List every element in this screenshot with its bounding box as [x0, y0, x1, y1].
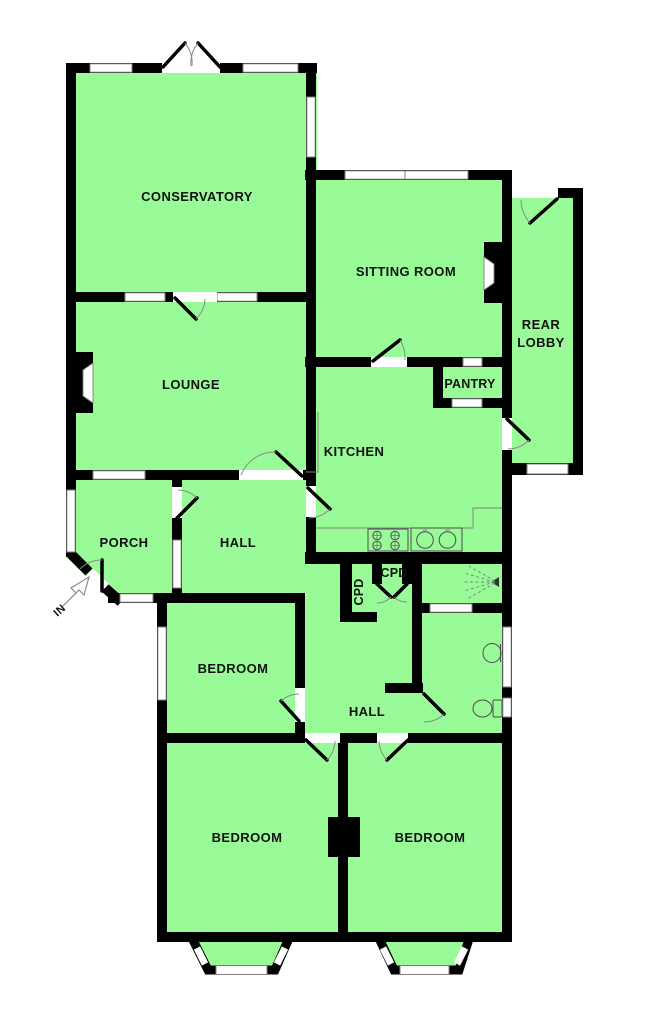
label-cupboard-1: CPD: [352, 579, 366, 606]
window-porch-hall: [173, 540, 181, 588]
label-hall-front: HALL: [220, 535, 256, 550]
window-lounge-top-2: [217, 293, 257, 301]
label-rear-lobby-line2: LOBBY: [517, 335, 565, 350]
opening-pantry-north: [463, 358, 482, 366]
fireplace-lounge-icon: [66, 352, 93, 413]
fireplace-sitting-room-icon: [484, 242, 502, 303]
window-bathroom-2: [503, 698, 511, 717]
label-bedroom-middle: BEDROOM: [198, 661, 269, 676]
floorplan-drawing: CONSERVATORY SITTING ROOM REAR LOBBY LOU…: [0, 0, 645, 1024]
floorplan-page: CONSERVATORY SITTING ROOM REAR LOBBY LOU…: [0, 0, 645, 1024]
window-porch-south: [120, 594, 153, 602]
window-bedroom-middle: [158, 627, 166, 700]
label-hall-rear: HALL: [349, 704, 385, 719]
window-sitting-room: [345, 171, 468, 179]
label-porch: PORCH: [100, 535, 149, 550]
label-cupboard-2: CPD: [381, 566, 408, 580]
label-bedroom-left: BEDROOM: [212, 830, 283, 845]
label-pantry: PANTRY: [444, 377, 496, 391]
window-lounge-top-1: [125, 293, 165, 301]
label-sitting-room: SITTING ROOM: [356, 264, 456, 279]
window-conservatory-east: [307, 97, 315, 157]
floor-conservatory: [66, 63, 317, 302]
chimney-breast-bedrooms-icon: [328, 817, 360, 857]
label-conservatory: CONSERVATORY: [141, 189, 253, 204]
label-kitchen: KITCHEN: [324, 444, 385, 459]
label-lounge: LOUNGE: [162, 377, 220, 392]
label-rear-lobby-line1: REAR: [522, 317, 561, 332]
window-conservatory-top-right: [243, 64, 298, 72]
window-porch-north: [93, 471, 145, 479]
opening-pantry-south: [452, 399, 482, 407]
window-rear-lobby: [527, 464, 568, 474]
label-bedroom-right: BEDROOM: [395, 830, 466, 845]
window-porch-west: [67, 490, 75, 552]
window-conservatory-top-left: [90, 64, 132, 72]
floor-middle-zone: [157, 557, 512, 743]
window-shower-room: [430, 604, 472, 612]
window-bathroom-1: [503, 627, 511, 687]
